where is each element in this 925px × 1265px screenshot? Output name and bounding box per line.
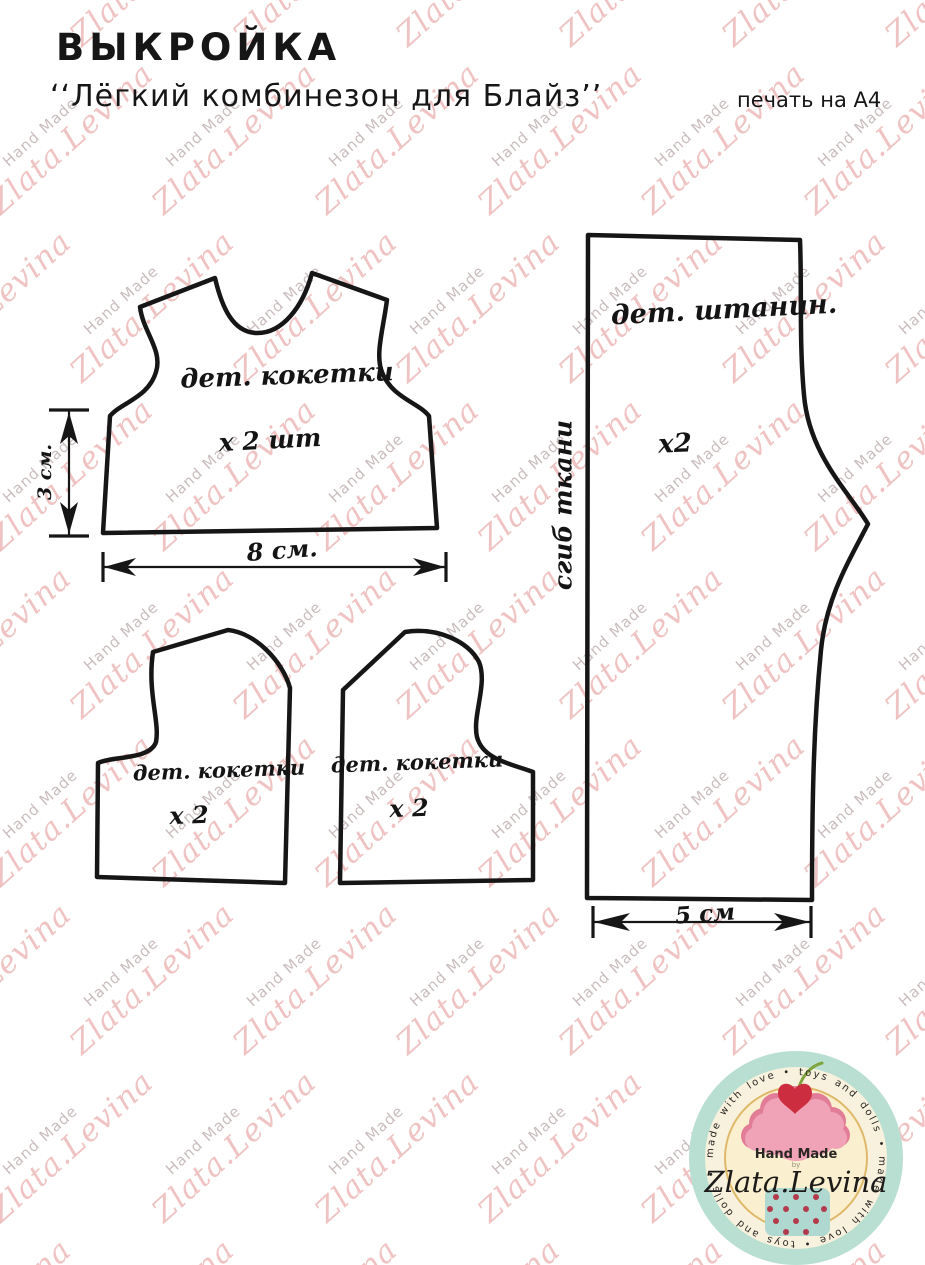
yoke-right-quantity: х 2 (389, 793, 429, 823)
pattern-sheet: Hand MadeZlata.LevinaHand MadeZlata.Levi… (0, 0, 925, 1265)
logo-name-text: Zlata.Levina (704, 1165, 888, 1199)
logo-handmade-text: Hand Made (755, 1147, 838, 1162)
dimension-8cm-label: 8 см. (246, 533, 319, 567)
yoke-left-quantity: х 2 (169, 800, 209, 830)
pant-leg-outline (587, 235, 868, 900)
fabric-fold-note: сгиб ткани (549, 420, 578, 590)
shop-logo: made with love • toys and dolls • made w… (686, 1051, 906, 1265)
print-format-note: печать на А4 (737, 88, 881, 112)
yoke-front-outline (103, 273, 437, 533)
yoke-front-quantity: х 2 шт (218, 423, 322, 457)
page-title: ВЫКРОЙКА (56, 26, 341, 69)
dimension-3cm-label: 3 см. (34, 444, 56, 500)
dimension-5cm-label: 5 см (674, 898, 736, 929)
pant-leg-quantity: х2 (658, 428, 693, 459)
page-subtitle: ‘‘Лёгкий комбинезон для Блайз’’ (50, 79, 602, 114)
